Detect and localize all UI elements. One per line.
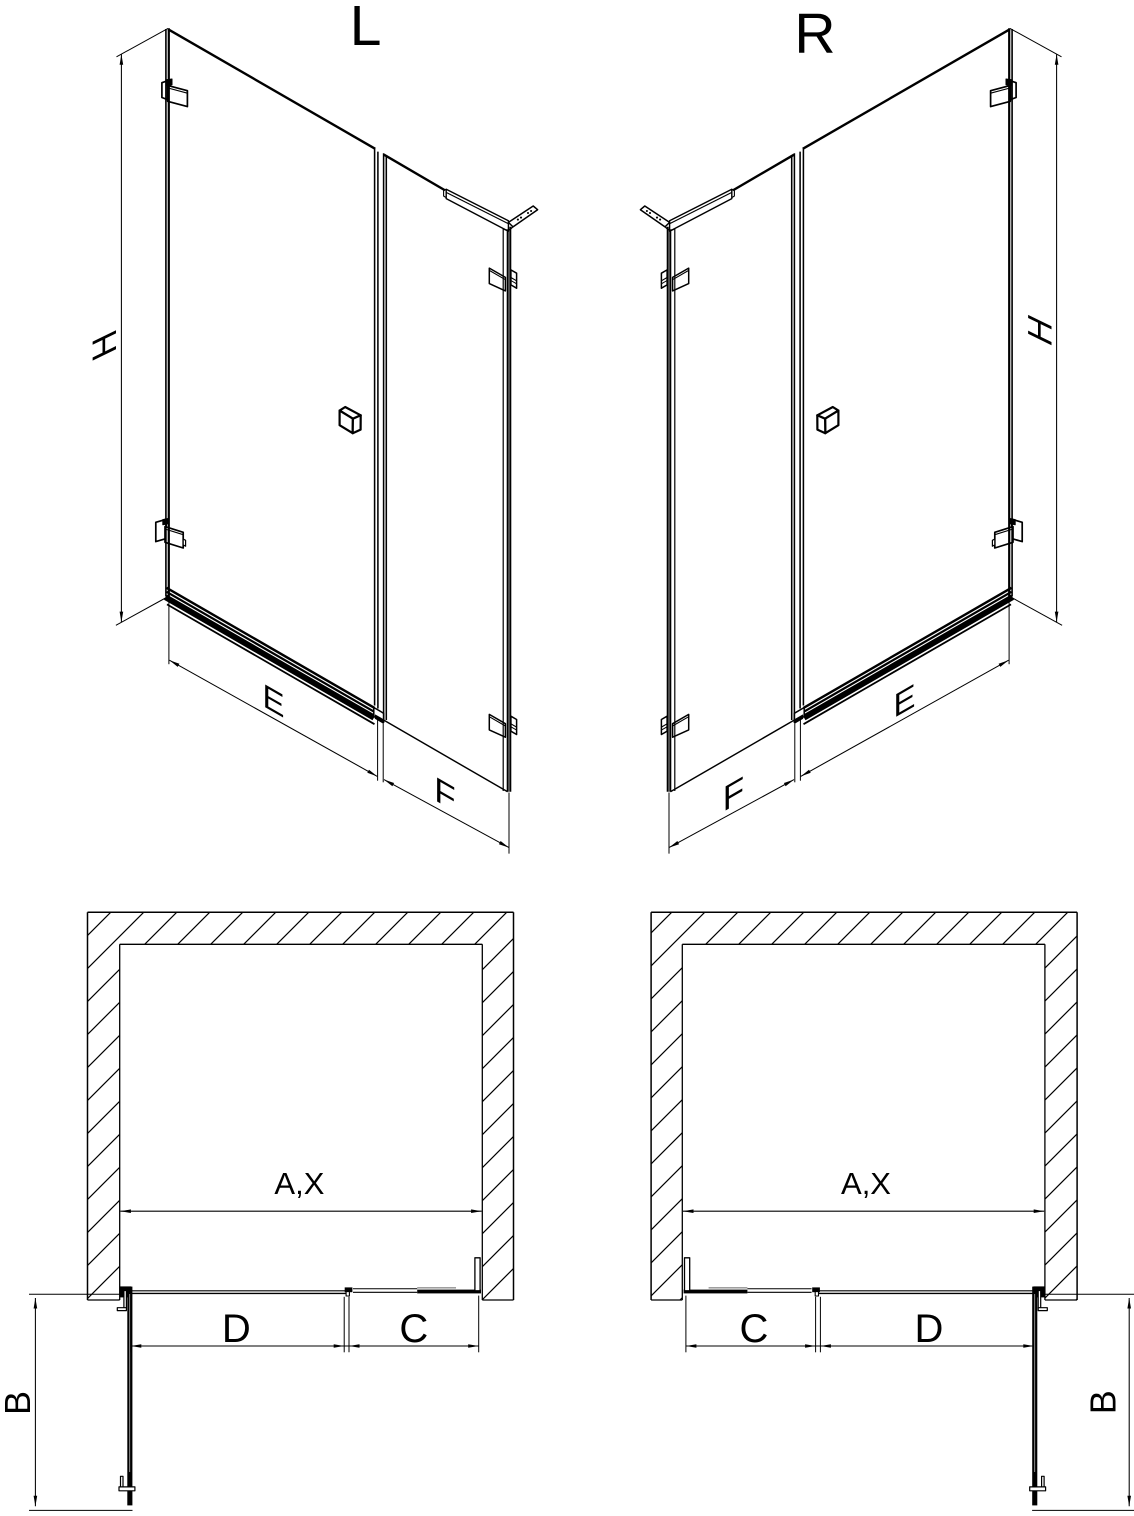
svg-text:C: C [740, 1307, 769, 1351]
svg-text:A,X: A,X [841, 1166, 891, 1201]
svg-text:L: L [350, 0, 382, 58]
svg-text:C: C [399, 1307, 428, 1351]
svg-text:B: B [1083, 1390, 1124, 1414]
svg-text:B: B [0, 1391, 38, 1415]
svg-text:D: D [222, 1307, 251, 1351]
svg-text:D: D [914, 1307, 943, 1351]
svg-text:A,X: A,X [274, 1166, 324, 1201]
svg-text:R: R [794, 1, 835, 65]
